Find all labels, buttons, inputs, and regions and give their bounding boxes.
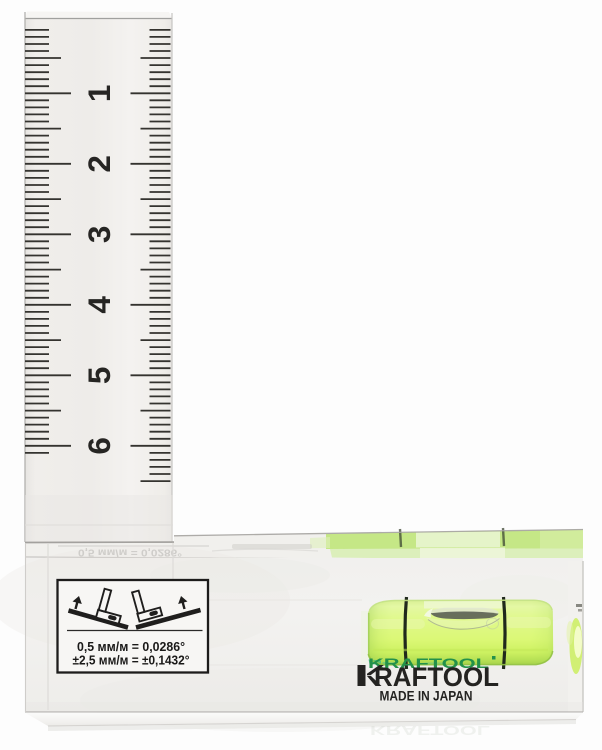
svg-text:0,5 мм/м = 0,0286°: 0,5 мм/м = 0,0286° xyxy=(77,640,185,654)
svg-text:1: 1 xyxy=(81,85,117,103)
svg-text:MADE IN JAPAN: MADE IN JAPAN xyxy=(380,688,473,704)
svg-text:4: 4 xyxy=(81,296,117,314)
svg-text:3: 3 xyxy=(81,226,117,244)
svg-text:6: 6 xyxy=(81,437,117,455)
svg-text:2: 2 xyxy=(81,155,117,173)
svg-text:KRAFTOOL: KRAFTOOL xyxy=(370,723,490,738)
svg-text:±2,5 мм/м = ±0,1432°: ±2,5 мм/м = ±0,1432° xyxy=(73,654,190,668)
svg-text:5: 5 xyxy=(81,367,117,385)
